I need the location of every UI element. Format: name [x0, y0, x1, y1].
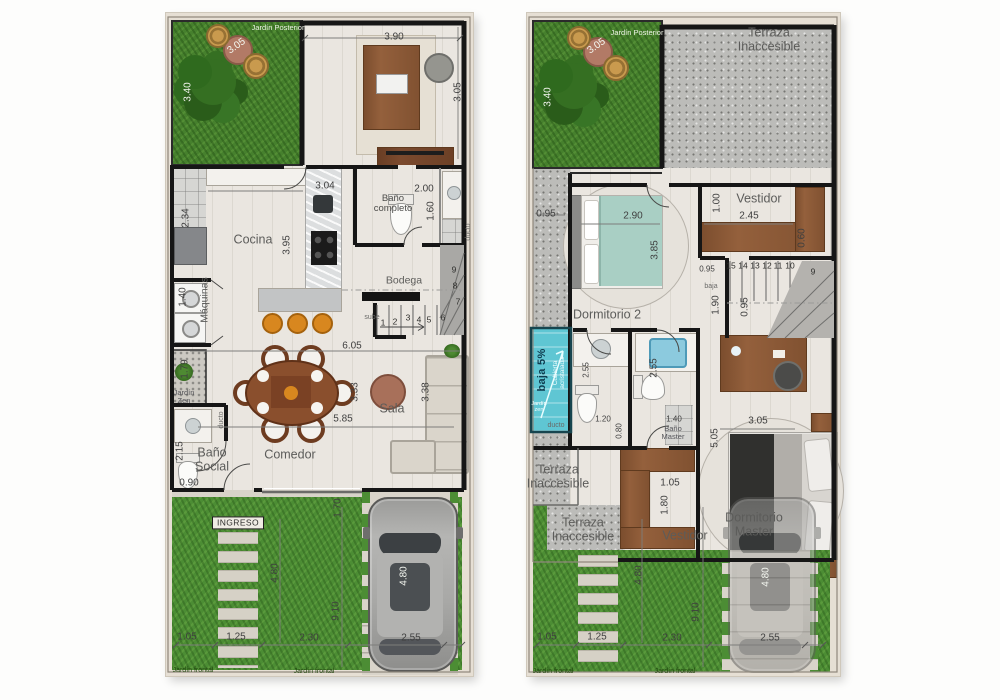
desk-item: [773, 350, 785, 358]
washbasin: [447, 186, 461, 200]
front-garden-patch: [533, 505, 547, 555]
desk-item: [731, 346, 741, 356]
closet: [620, 527, 695, 549]
desk-chair: [424, 53, 454, 83]
patio-chair: [243, 53, 269, 79]
car-mirror: [456, 527, 463, 539]
skylight-glass-cover: [531, 328, 571, 432]
car-mirror: [723, 527, 730, 539]
pillow: [584, 200, 599, 240]
laptop: [376, 74, 408, 94]
washer: [174, 283, 206, 313]
car-mirror: [363, 527, 370, 539]
dryer: [174, 313, 206, 343]
pillow: [584, 244, 599, 284]
closet: [795, 187, 825, 252]
floor-plan-canvas: Jardín Posterior3.053.403.903.053.04Baño…: [0, 0, 1000, 700]
car-roof: [737, 553, 803, 637]
desk: [363, 45, 420, 130]
patio-chair: [603, 55, 629, 81]
sofa-chaise: [390, 440, 436, 474]
ground-floor-plan: Jardín Posterior3.053.403.903.053.04Baño…: [166, 13, 473, 676]
car-rear-window: [739, 639, 801, 655]
washbasin: [185, 418, 201, 434]
nightstand: [811, 413, 837, 432]
patio-chair: [206, 24, 230, 48]
pillow: [803, 438, 834, 492]
island-bar: [258, 288, 342, 312]
indoor-plant: [444, 344, 460, 358]
dining-table: [245, 360, 339, 426]
tv-console: [377, 147, 454, 167]
entry-path-stones: [578, 555, 618, 668]
plate: [257, 370, 269, 382]
car-roof: [377, 553, 443, 637]
bar-stool: [312, 313, 333, 334]
car-mirror: [814, 527, 821, 539]
garden-tree: [178, 55, 212, 89]
car: [368, 497, 458, 672]
fridge: [174, 227, 207, 265]
tv: [386, 151, 444, 155]
powder-room-sink: [174, 409, 212, 443]
desk-chair: [773, 361, 803, 391]
bed-blanket: [599, 196, 662, 286]
plate: [311, 370, 323, 382]
shower: [442, 219, 464, 243]
garden-tree: [539, 59, 573, 93]
car-sunroof: [750, 563, 790, 611]
bar-stool: [262, 313, 283, 334]
kitchen-sink: [313, 195, 333, 213]
kitchen-counter: [206, 168, 307, 186]
car-sunroof: [390, 563, 430, 611]
bowl: [284, 386, 298, 400]
car-rear-window: [379, 639, 441, 655]
car-ghost: [728, 497, 816, 673]
coffee-table: [370, 374, 406, 410]
upper-floor-plan: Jardín Posterior3.053.40Terraza Inaccesi…: [527, 13, 840, 676]
closet: [620, 448, 695, 472]
zen-plant: [175, 363, 193, 381]
stove: [311, 231, 337, 265]
bar-stool: [287, 313, 308, 334]
toilet: [641, 374, 665, 400]
dimension-label: ducto: [465, 223, 473, 240]
shower: [665, 405, 693, 445]
entry-path-stones: [218, 532, 258, 668]
patio-chair: [567, 26, 591, 50]
plate: [257, 402, 269, 414]
terrace-inaccessible: [662, 25, 836, 185]
bathtub-basin: [649, 338, 687, 368]
washbasin: [591, 339, 611, 359]
plate: [311, 402, 323, 414]
